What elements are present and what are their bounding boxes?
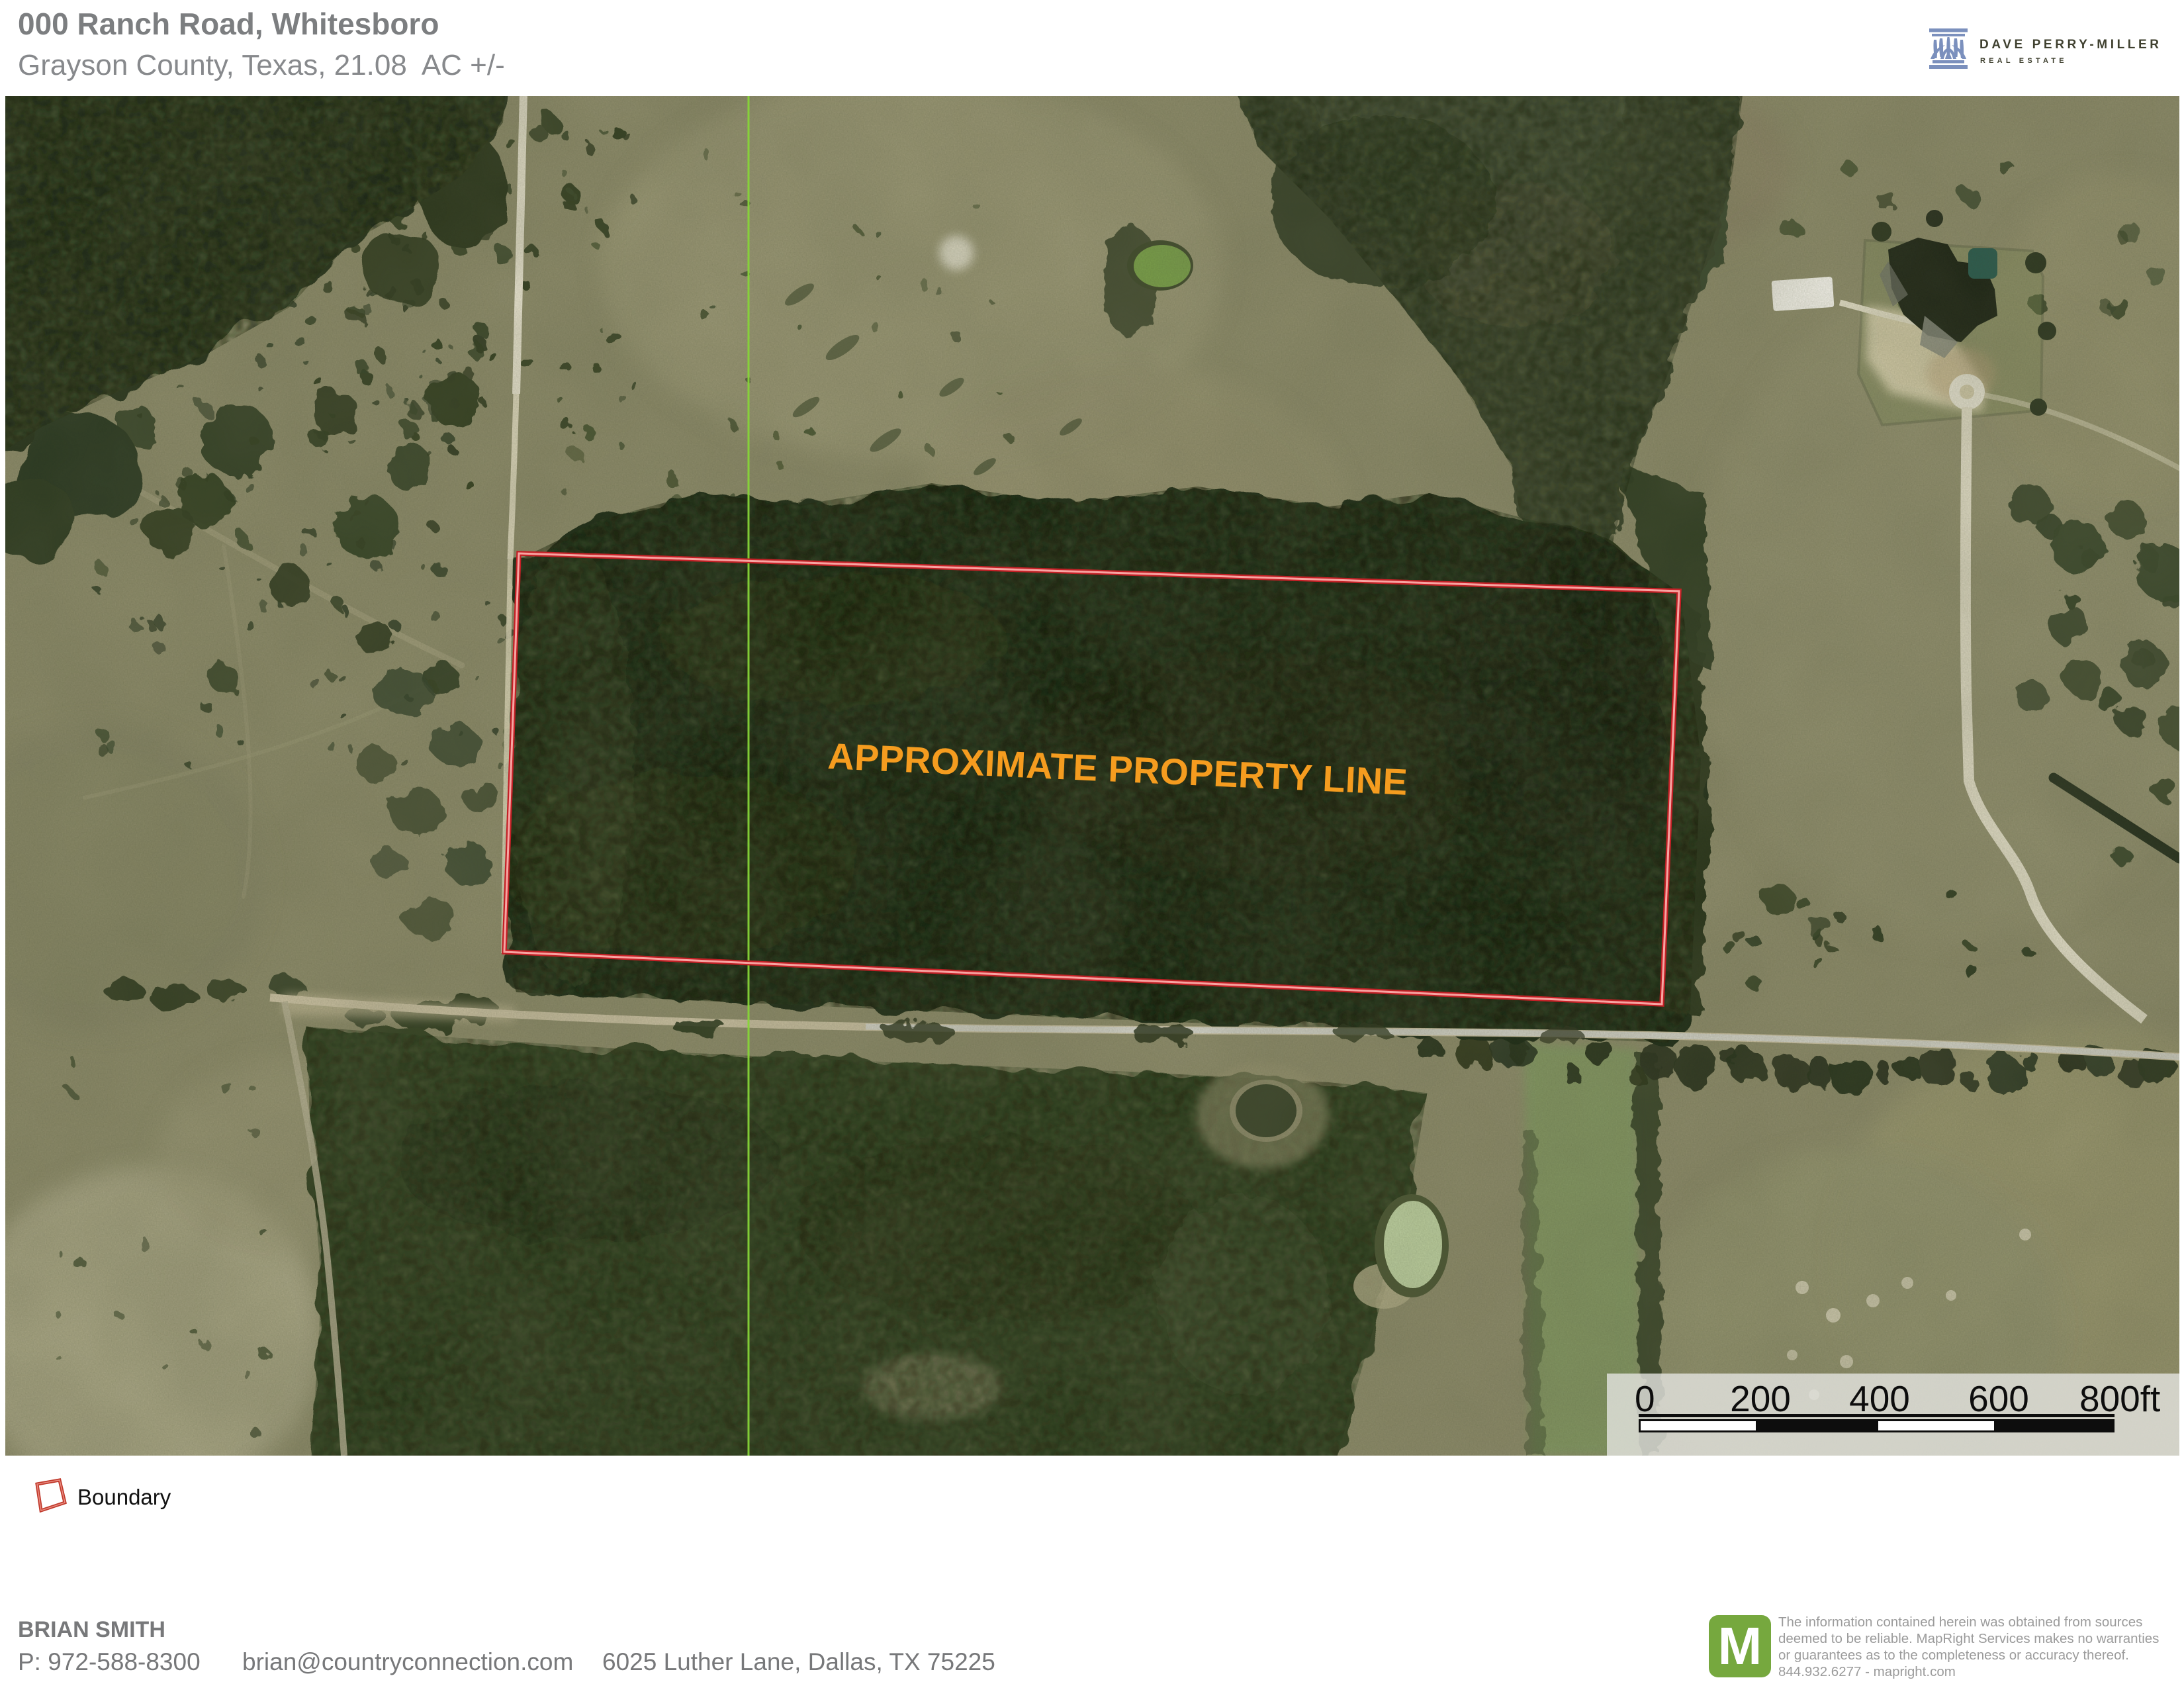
svg-text:600: 600 (1968, 1378, 2029, 1419)
svg-text:800ft: 800ft (2079, 1378, 2160, 1419)
svg-text:0: 0 (1635, 1378, 1655, 1419)
svg-text:DAVE PERRY-MILLER: DAVE PERRY-MILLER (1979, 38, 2162, 52)
svg-text:200: 200 (1730, 1378, 1791, 1419)
svg-text:REAL ESTATE: REAL ESTATE (1980, 57, 2068, 65)
svg-text:400: 400 (1849, 1378, 1910, 1419)
